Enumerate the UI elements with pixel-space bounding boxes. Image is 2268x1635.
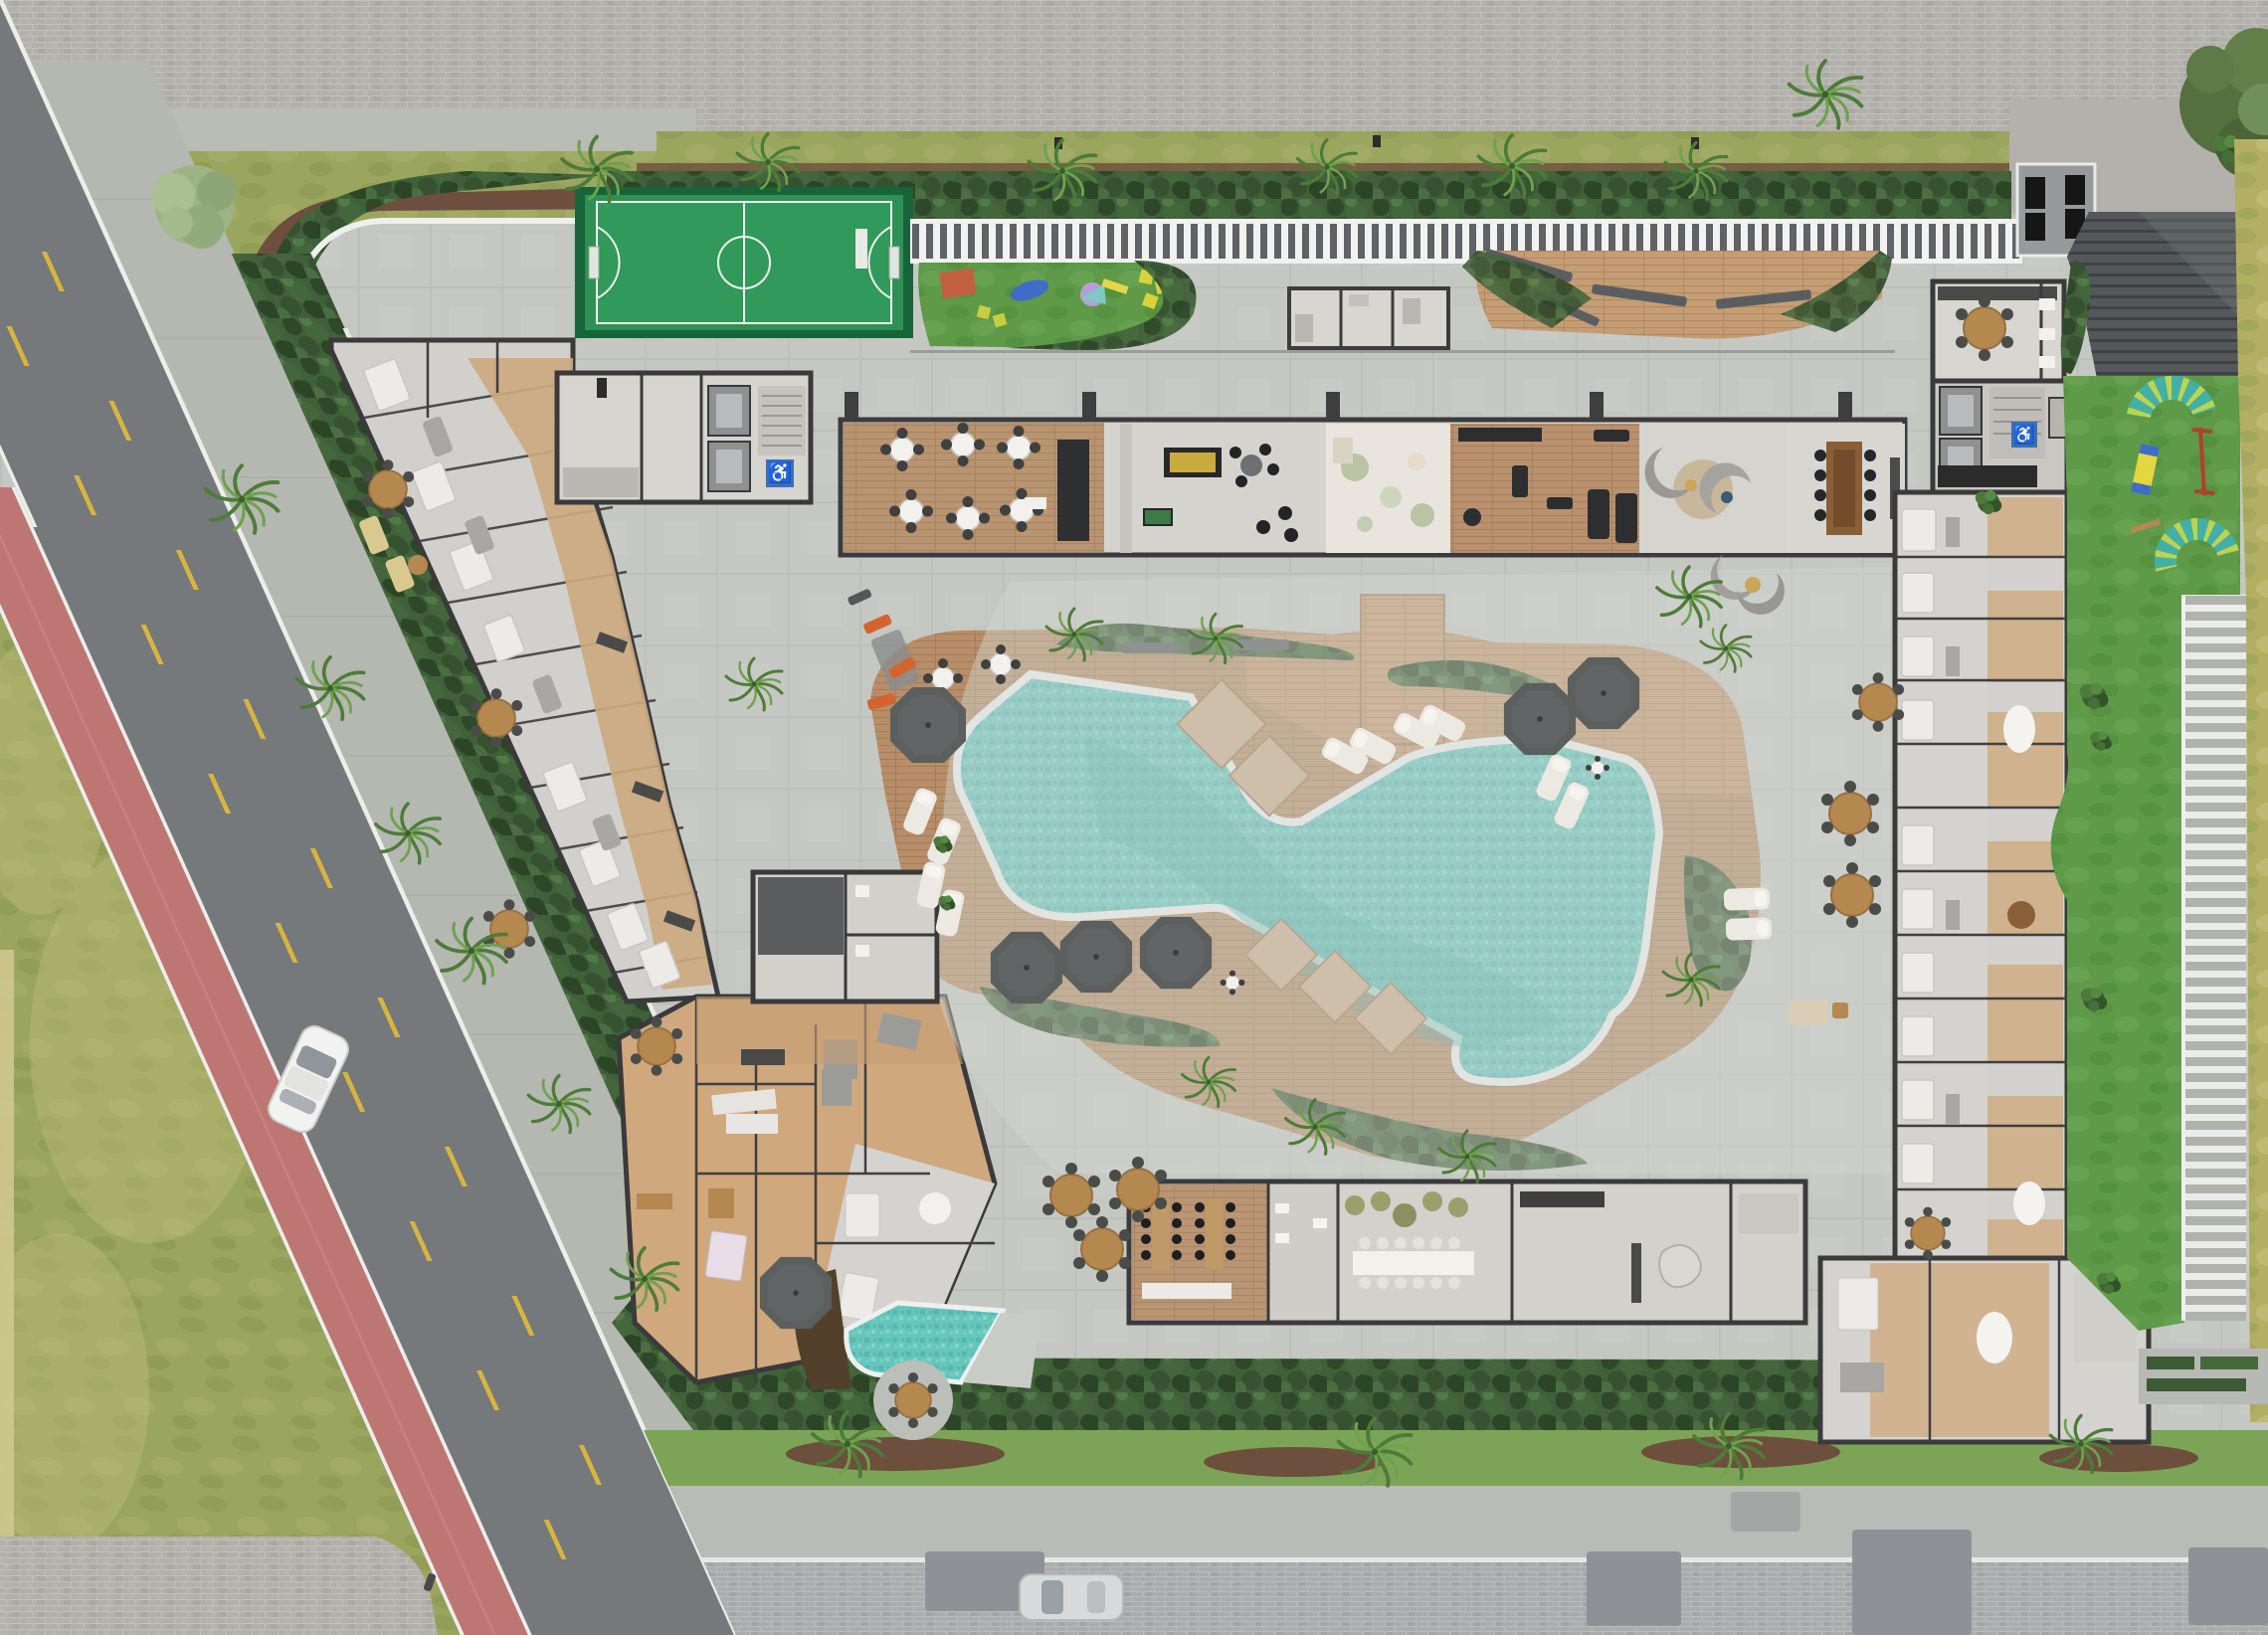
svg-text:♿: ♿ — [768, 460, 793, 484]
svg-text:♿: ♿ — [2013, 424, 2035, 445]
